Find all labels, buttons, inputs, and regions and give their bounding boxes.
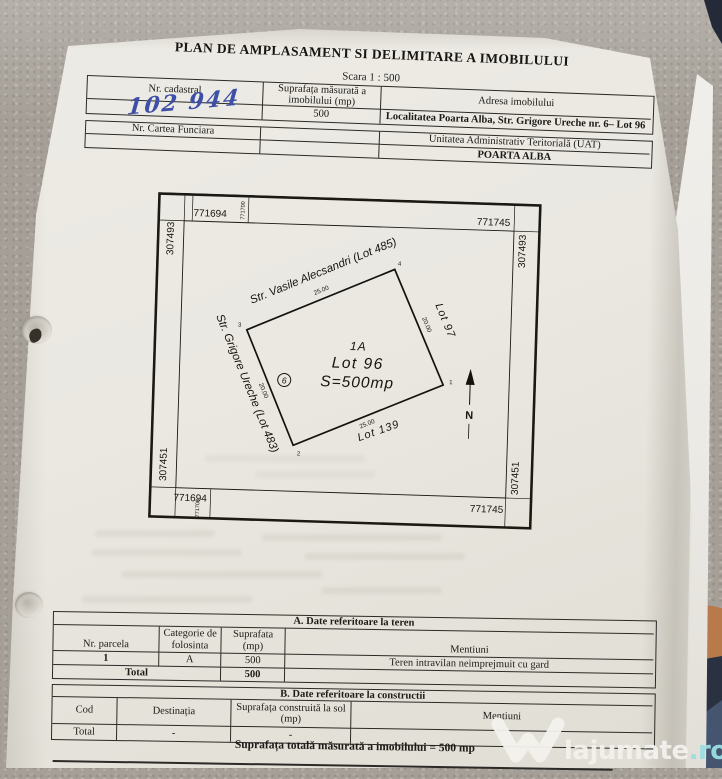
cell-categorie: A	[159, 653, 221, 668]
watermark: lajumate.ro	[488, 714, 722, 768]
watermark-text: lajumate.ro	[564, 736, 722, 766]
watermark-brand: lajumate	[564, 736, 689, 766]
header-suprafata-mp: Suprafata (mp)	[221, 628, 285, 655]
lajumate-logo-icon	[498, 724, 558, 756]
header-nr-parcela: Nr. parcela	[53, 625, 159, 653]
table-teren: A. Date referitoare la teren Nr. parcela…	[52, 611, 657, 688]
cell-total-b-label: Total	[52, 724, 117, 740]
watermark-canvas: lajumate.ro	[488, 714, 722, 768]
photo-of-cadastral-document: { "document": { "title": "PLAN DE AMPLAS…	[0, 0, 722, 768]
document-tables: A. Date referitoare la teren Nr. parcela…	[0, 0, 722, 778]
watermark-tld: .ro	[689, 736, 722, 766]
cell-suprafata: 500	[221, 654, 285, 669]
header-categorie: Categorie de folosinta	[159, 627, 221, 654]
cell-total-label: Total	[53, 665, 221, 681]
header-cod: Cod	[52, 697, 117, 725]
header-suprafata-construita: Suprafața construită la sol (mp)	[231, 700, 351, 729]
cell-total-value: 500	[221, 668, 285, 682]
header-destinatia: Destinația	[117, 698, 231, 727]
